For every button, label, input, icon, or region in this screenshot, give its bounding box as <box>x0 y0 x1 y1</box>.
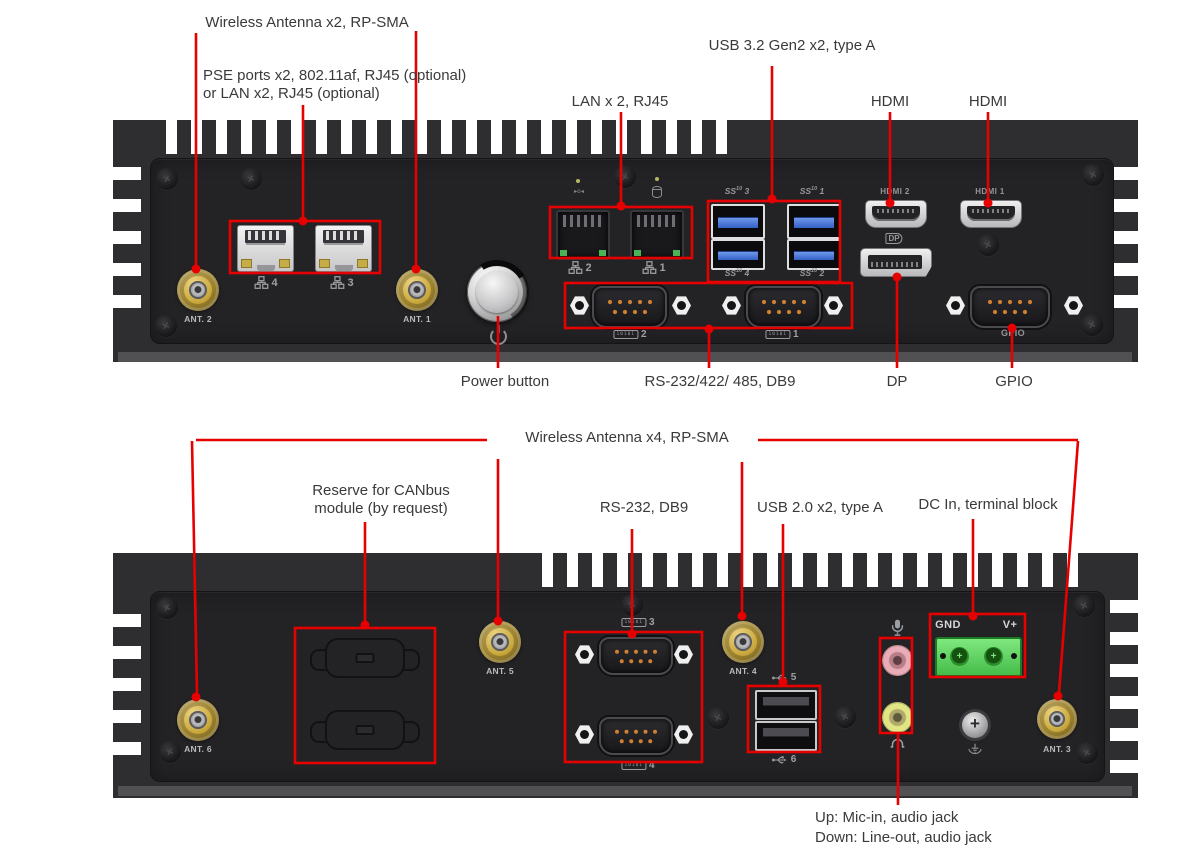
canbus-blank-plate-1 <box>310 638 420 678</box>
headphone-icon <box>890 738 905 749</box>
lan-rj45-port-1 <box>630 210 684 260</box>
rj45-latch <box>335 265 353 271</box>
network-icon <box>568 261 582 274</box>
terminal-vplus-label: V+ <box>1003 619 1018 631</box>
ss-sup: 10 <box>736 268 742 274</box>
serial-db9-port-2 <box>592 286 667 328</box>
rj45-led <box>319 259 330 268</box>
screw <box>621 594 643 616</box>
lan-led <box>576 179 580 183</box>
serial-db9-port-3 <box>599 637 673 675</box>
terminal-screw <box>984 647 1003 666</box>
antenna-connector-ant6 <box>177 699 219 741</box>
callout-wireless-antenna-x2: Wireless Antenna x2, RP-SMA <box>205 14 408 31</box>
hdmi-slot <box>872 206 920 221</box>
rj45-pins <box>245 230 286 243</box>
lan-port1-label: 1 <box>642 261 665 274</box>
ant4-label: ANT. 4 <box>729 666 757 676</box>
port-number: 4 <box>271 277 277 289</box>
usb2-port5-label: 5 <box>772 672 797 683</box>
rj45-pins <box>323 230 364 243</box>
antenna-connector-ant1 <box>396 269 438 311</box>
ss-prefix: SS <box>800 268 811 278</box>
power-icon <box>490 328 507 345</box>
rj45-led <box>279 259 290 268</box>
callout-hdmi-left: HDMI <box>871 93 909 110</box>
serial-port-icon: 10101 <box>621 761 646 770</box>
port-number: 2 <box>585 262 591 274</box>
usb-icon <box>772 755 788 765</box>
port-number: 1 <box>793 329 799 340</box>
screw <box>834 706 856 728</box>
ant2-label: ANT. 2 <box>184 314 212 324</box>
rear-chassis-base <box>118 786 1132 796</box>
ss-prefix: SS <box>725 186 736 196</box>
front-heatsink-fins <box>152 120 730 154</box>
callout-usb20: USB 2.0 x2, type A <box>757 499 883 516</box>
dp-slot <box>868 255 922 269</box>
db9-pins <box>984 297 1036 317</box>
screw <box>614 166 636 188</box>
screw <box>977 234 999 256</box>
ss-prefix: SS <box>800 186 811 196</box>
io-diagram-scene: ANT. 2 ANT. 1 4 3 ▸o◂ 2 <box>0 0 1200 859</box>
usb2-port-6 <box>755 721 817 751</box>
front-left-side-fins <box>113 167 141 327</box>
callout-lan: LAN x 2, RJ45 <box>572 93 669 110</box>
hdmi-port-2 <box>865 200 927 228</box>
line-out-jack <box>883 703 912 732</box>
ground-symbol-icon <box>967 743 983 755</box>
callout-rs232: RS-232, DB9 <box>600 499 688 516</box>
usb3-port-3 <box>711 204 765 239</box>
rj45-led <box>357 259 368 268</box>
callout-gpio: GPIO <box>995 373 1033 390</box>
screw <box>159 741 181 763</box>
port-number: 2 <box>641 329 647 340</box>
terminal-hole <box>1011 653 1017 659</box>
rear-right-side-fins <box>1110 600 1138 776</box>
hdmi-slot <box>967 206 1015 221</box>
rj45-pins <box>563 215 603 227</box>
power-button[interactable] <box>467 262 527 322</box>
displayport-port <box>860 248 932 277</box>
rj45-latch <box>257 265 275 271</box>
usb2-port-5 <box>755 690 817 720</box>
antenna-connector-ant3 <box>1037 699 1077 739</box>
usb3-port-2 <box>787 239 841 270</box>
terminal-hole <box>940 653 946 659</box>
callout-dp: DP <box>887 373 908 390</box>
usb3-port4-label: SS10 4 <box>725 268 750 278</box>
lan-port2-label: 2 <box>568 261 591 274</box>
db9-pins <box>604 297 656 317</box>
callout-usb32: USB 3.2 Gen2 x2, type A <box>709 37 876 54</box>
port-number: 3 <box>649 617 655 628</box>
front-fin-solid-left <box>113 120 152 154</box>
ant6-label: ANT. 6 <box>184 744 212 754</box>
callout-canbus-line1: Reserve for CANbus <box>312 482 450 499</box>
network-icon <box>330 276 344 289</box>
usb3-port2-label: SS10 2 <box>800 268 825 278</box>
screw <box>156 597 178 619</box>
usb3-port-1 <box>787 204 841 239</box>
port-number: 1 <box>820 186 825 196</box>
lan-led <box>655 177 659 181</box>
port-number: 2 <box>820 268 825 278</box>
callout-pse-line2: or LAN x2, RJ45 (optional) <box>203 85 380 102</box>
displayport-logo-icon: DP <box>885 233 902 244</box>
gpio-port-label: GPIO <box>1001 328 1025 338</box>
usb3-port3-label: SS10 3 <box>725 186 750 196</box>
port-number: 3 <box>347 277 353 289</box>
blank-slot <box>356 653 375 663</box>
callout-hdmi-right: HDMI <box>969 93 1007 110</box>
rj45-pins <box>637 215 677 227</box>
blank-slot <box>356 725 375 735</box>
port-number: 5 <box>791 672 797 683</box>
rj45-led <box>599 250 606 256</box>
pse-rj45-port-3 <box>315 225 372 272</box>
db9-pins <box>758 297 810 317</box>
lan-storage-icon <box>652 186 662 198</box>
network-icon <box>254 276 268 289</box>
rear-left-side-fins <box>113 614 141 774</box>
front-chassis-base <box>118 352 1132 362</box>
callout-canbus-line2: module (by request) <box>314 500 447 517</box>
lan-poe-icon: ▸o◂ <box>574 188 584 195</box>
port-number: 3 <box>745 186 750 196</box>
terminal-screw <box>950 647 969 666</box>
port-number: 4 <box>649 760 655 771</box>
lan-rj45-port-2 <box>556 210 610 260</box>
screw <box>1076 742 1098 764</box>
serial-port1-label: 10101 1 <box>765 329 798 340</box>
serial-db9-port-1 <box>746 286 821 328</box>
antenna-connector-ant2 <box>177 269 219 311</box>
callout-rs232-422-485: RS-232/422/ 485, DB9 <box>645 373 796 390</box>
rj45-led <box>560 250 567 256</box>
screw <box>240 168 262 190</box>
hdmi2-port-label: HDMI 2 <box>880 187 910 196</box>
serial-port-icon: 10101 <box>613 330 638 339</box>
ant1-label: ANT. 1 <box>403 314 431 324</box>
port-number: 1 <box>659 262 665 274</box>
serial-port3-label: 10101 3 <box>621 617 654 628</box>
screw <box>156 168 178 190</box>
callout-pse-line1: PSE ports x2, 802.11af, RJ45 (optional) <box>203 67 466 84</box>
serial-db9-port-4 <box>599 717 673 755</box>
usb2-port6-label: 6 <box>772 754 797 765</box>
screw <box>1082 164 1104 186</box>
rj45-led <box>634 250 641 256</box>
port-number: 4 <box>745 268 750 278</box>
ant5-label: ANT. 5 <box>486 666 514 676</box>
screw <box>155 315 177 337</box>
rear-fin-solid-right <box>1087 553 1138 587</box>
antenna-connector-ant4 <box>722 621 764 663</box>
pse-port4-label: 4 <box>254 276 277 289</box>
antenna-connector-ant5 <box>479 621 521 663</box>
screw <box>1073 595 1095 617</box>
front-right-side-fins <box>1110 167 1138 327</box>
usb3-port1-label: SS10 1 <box>800 186 825 196</box>
front-fin-solid-right <box>730 120 1138 154</box>
ss-sup: 10 <box>811 268 817 274</box>
gpio-db9-port <box>970 286 1050 328</box>
canbus-blank-plate-2 <box>310 710 420 750</box>
rear-fin-solid-left <box>113 553 528 587</box>
callout-power-button: Power button <box>461 373 549 390</box>
terminal-gnd-label: GND <box>935 619 961 631</box>
rear-heatsink-fins <box>528 553 1087 587</box>
mic-in-jack <box>883 646 912 675</box>
usb3-port-4 <box>711 239 765 270</box>
serial-port4-label: 10101 4 <box>621 760 654 771</box>
callout-audio-line1: Up: Mic-in, audio jack <box>815 809 958 826</box>
ss-sup: 10 <box>736 186 742 192</box>
mic-icon <box>891 619 904 636</box>
screw <box>1081 314 1103 336</box>
ss-sup: 10 <box>811 186 817 192</box>
callout-wireless-antenna-x4: Wireless Antenna x4, RP-SMA <box>525 429 728 446</box>
screw <box>707 707 729 729</box>
hdmi-port-1 <box>960 200 1022 228</box>
pse-rj45-port-4 <box>237 225 294 272</box>
db9-pins <box>611 647 661 666</box>
network-icon <box>642 261 656 274</box>
callout-audio-line2: Down: Line-out, audio jack <box>815 829 992 846</box>
rj45-led <box>241 259 252 268</box>
port-number: 6 <box>791 754 797 765</box>
ant3-label: ANT. 3 <box>1043 744 1071 754</box>
dc-in-terminal-block <box>935 637 1022 677</box>
serial-port-icon: 10101 <box>621 618 646 627</box>
grounding-screw <box>962 712 988 738</box>
ss-prefix: SS <box>725 268 736 278</box>
db9-pins <box>611 727 661 746</box>
callout-dc-in: DC In, terminal block <box>918 496 1057 513</box>
usb-icon <box>772 673 788 683</box>
pse-port3-label: 3 <box>330 276 353 289</box>
serial-port-icon: 10101 <box>765 330 790 339</box>
serial-port2-label: 10101 2 <box>613 329 646 340</box>
hdmi1-port-label: HDMI 1 <box>975 187 1005 196</box>
rj45-led <box>673 250 680 256</box>
